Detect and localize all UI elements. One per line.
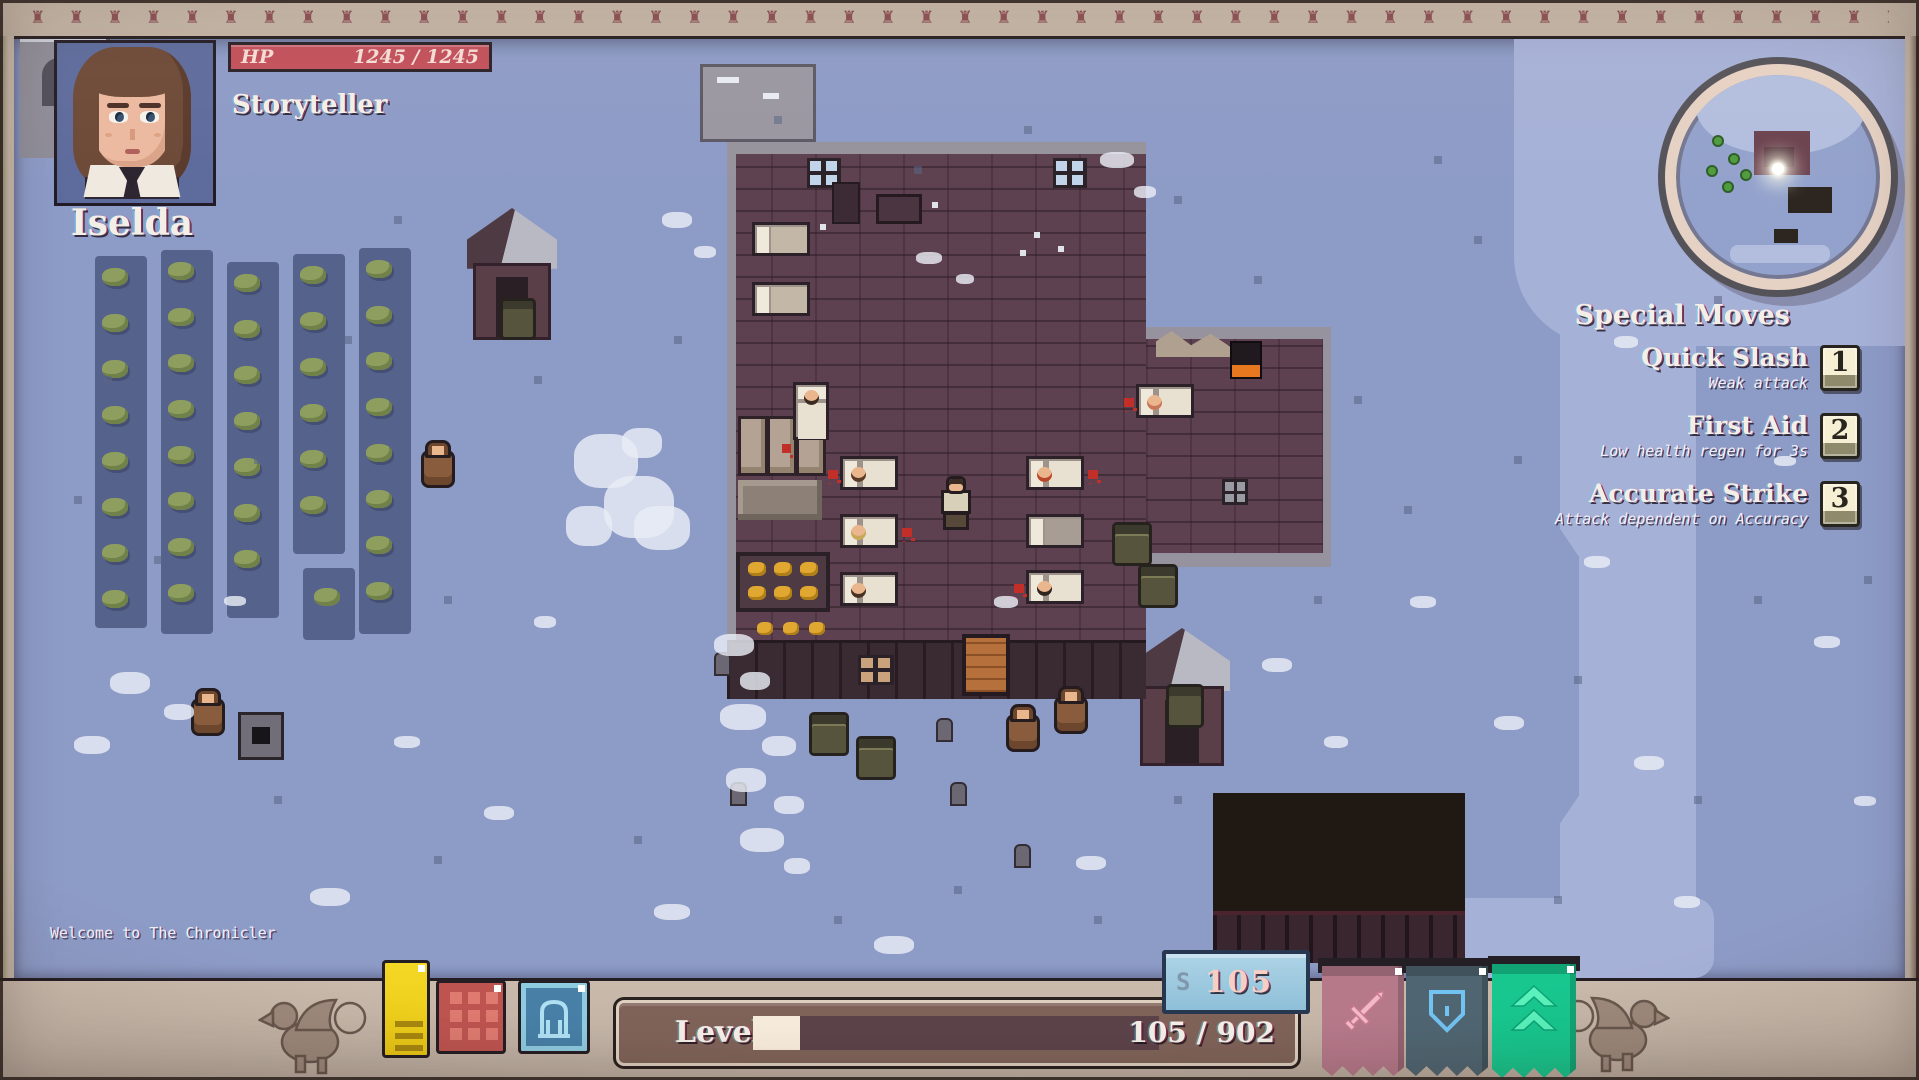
- bread-item: [800, 562, 818, 576]
- snow-patch: [726, 768, 766, 792]
- snow-patch: [654, 904, 690, 920]
- minimap-tree: [1728, 153, 1740, 165]
- patient-head[interactable]: [1037, 467, 1052, 482]
- freckle: [105, 133, 112, 137]
- minimap-tree: [1706, 165, 1718, 177]
- snow-fleck: [820, 224, 826, 230]
- snow-patch: [1854, 796, 1876, 806]
- window-pane: [826, 161, 837, 171]
- snow-patch: [1674, 896, 1700, 908]
- bed-sprite: [840, 456, 898, 490]
- snow-patch: [956, 274, 974, 284]
- currency-icon: S: [1176, 968, 1190, 996]
- bed-blanket: [771, 287, 807, 313]
- face: [432, 446, 444, 455]
- frame-top-border: ♜ ♜ ♜ ♜ ♜ ♜ ♜ ♜ ♜ ♜ ♜ ♜ ♜ ♜ ♜ ♜ ♜ ♜ ♜ ♜ …: [0, 0, 1919, 39]
- crop-plant: [102, 314, 128, 332]
- ground-speck: [394, 216, 402, 224]
- robe: [943, 512, 969, 530]
- bread-item: [748, 586, 766, 600]
- hair-lock-left: [83, 79, 99, 163]
- villager-sprite[interactable]: [191, 688, 225, 736]
- well: [238, 712, 284, 760]
- bed-sheet: [1049, 575, 1081, 601]
- grid-cell: [450, 1010, 462, 1022]
- minimap-structure: [1774, 229, 1798, 243]
- ground-speck: [1404, 506, 1412, 514]
- patient-head[interactable]: [804, 390, 819, 405]
- sacks: [738, 480, 822, 520]
- player-name: Iselda: [20, 202, 244, 244]
- bed-sprite: [840, 514, 898, 548]
- blood-decal: [1014, 584, 1024, 593]
- minimap-light-area: [1730, 245, 1830, 263]
- caretaker-sprite[interactable]: [939, 476, 973, 532]
- ground-speck: [1174, 196, 1182, 204]
- grave-post: [1014, 844, 1031, 868]
- ground-speck: [634, 836, 642, 844]
- game-screen: ♜ ♜ ♜ ♜ ♜ ♜ ♜ ♜ ♜ ♜ ♜ ♜ ♜ ♜ ♜ ♜ ♜ ♜ ♜ ♜ …: [0, 0, 1919, 1080]
- hotkey-1-button[interactable]: 1: [1820, 345, 1860, 391]
- window-pane: [1056, 175, 1067, 185]
- notes-icon[interactable]: [382, 960, 430, 1058]
- window-cross: [1225, 491, 1245, 494]
- ground-speck: [954, 886, 962, 894]
- snow-patch: [714, 634, 754, 656]
- hp-value: 1245 / 1245: [353, 46, 479, 68]
- crop-strip: [359, 248, 411, 634]
- stone-wall-top: [727, 142, 1146, 154]
- window-pane: [1072, 175, 1083, 185]
- iris-left: [115, 112, 124, 122]
- special-move-row: First Aid Low health regen for 3s 2: [1430, 413, 1860, 460]
- snow-patch: [1262, 658, 1292, 672]
- hp-label: HP: [241, 46, 273, 68]
- ground-speck: [1574, 676, 1582, 684]
- crop-plant: [366, 352, 392, 370]
- bread-item: [748, 562, 766, 576]
- icon-highlight: [1395, 968, 1402, 975]
- snow-patch: [310, 888, 350, 906]
- grid-cell: [450, 1028, 462, 1040]
- crop-plant: [168, 400, 194, 418]
- frame-right-border: [1905, 36, 1919, 978]
- ground-speck: [534, 376, 542, 384]
- wall-window: [858, 655, 894, 685]
- special-move-row: Quick Slash Weak attack 1: [1430, 345, 1860, 392]
- snow-patch: [1410, 596, 1436, 608]
- shield-icon: [1423, 986, 1471, 1038]
- player-class: Storyteller: [232, 90, 387, 120]
- ground-speck: [1864, 576, 1872, 584]
- ground-speck: [1434, 156, 1442, 164]
- roof: [1213, 793, 1465, 911]
- bread-item: [757, 622, 773, 635]
- ground-speck: [1314, 596, 1322, 604]
- minimap[interactable]: [1665, 64, 1891, 290]
- defense-banner[interactable]: [1406, 958, 1488, 1076]
- snow-patch: [1076, 856, 1106, 870]
- player-portrait[interactable]: [54, 40, 216, 206]
- stone-wall-left: [727, 142, 736, 642]
- currency-display: S 105: [1162, 950, 1310, 1014]
- window-pane: [861, 672, 873, 682]
- hotkey-3-button[interactable]: 3: [1820, 481, 1860, 527]
- grid-cell: [486, 1010, 498, 1022]
- food-table: [736, 552, 830, 612]
- icon-highlight: [418, 965, 425, 972]
- crop-plant: [366, 398, 392, 416]
- bed-blanket: [771, 227, 807, 253]
- snow-patch: [1814, 636, 1840, 648]
- minimap-tree: [1712, 135, 1724, 147]
- bed-sprite: [1136, 384, 1194, 418]
- ground-speck: [1024, 126, 1032, 134]
- ground-speck: [1174, 796, 1182, 804]
- ground-speck: [344, 336, 352, 344]
- face: [202, 694, 214, 703]
- snow-fleck: [1058, 246, 1064, 252]
- cabinet: [832, 182, 860, 224]
- special-moves-title: Special Moves: [1430, 300, 1860, 331]
- bed-sheet: [1049, 461, 1081, 487]
- window-pane: [1072, 161, 1083, 171]
- crop-plant: [102, 406, 128, 424]
- crop-plant: [168, 262, 194, 280]
- crop-plant: [234, 504, 260, 522]
- bed-blanket: [1045, 519, 1081, 545]
- bed-pillow: [757, 227, 769, 253]
- patient-head[interactable]: [1037, 581, 1052, 596]
- minimap-structure: [1788, 187, 1832, 213]
- snow-patch: [534, 616, 556, 628]
- snow-fleck: [1034, 232, 1040, 238]
- bed-sprite: [840, 572, 898, 606]
- bread-item: [783, 622, 799, 635]
- ground-speck: [1694, 796, 1702, 804]
- barrel-sprite: [809, 712, 849, 756]
- barrel-sprite: [500, 298, 536, 340]
- window-icon: [1053, 158, 1087, 188]
- crop-plant: [366, 536, 392, 554]
- grid-cell: [468, 1010, 480, 1022]
- snow-fleck: [1020, 250, 1026, 256]
- crop-plant: [234, 412, 260, 430]
- move-desc: Weak attack: [1641, 374, 1808, 392]
- grid-cell: [468, 992, 480, 1004]
- crop-plant: [234, 366, 260, 384]
- snow-patch: [394, 736, 420, 748]
- table: [876, 194, 922, 224]
- snow-patch: [784, 858, 810, 874]
- ground-speck: [1254, 276, 1262, 284]
- ground-speck: [1474, 236, 1482, 244]
- snow-patch: [994, 596, 1018, 608]
- snow-patch: [110, 672, 150, 694]
- bed-sheet: [1159, 389, 1191, 415]
- crop-plant: [366, 582, 392, 600]
- minimap-tree: [1722, 181, 1734, 193]
- villager-sprite[interactable]: [1054, 686, 1088, 734]
- door: [962, 634, 1010, 696]
- crop-plant: [168, 538, 194, 556]
- snow-fleck: [932, 202, 938, 208]
- crop-plant: [300, 312, 326, 330]
- ground-speck: [1754, 596, 1762, 604]
- crop-plant: [300, 450, 326, 468]
- hut-roof: [467, 208, 557, 269]
- xp-fill: [753, 1016, 800, 1050]
- nose: [130, 129, 135, 140]
- blood-decal: [1124, 398, 1134, 407]
- move-name: First Aid: [1600, 413, 1808, 439]
- snow-fleck: [717, 77, 739, 83]
- grid-cell: [468, 1028, 480, 1040]
- grave-post: [950, 782, 967, 806]
- move-desc: Attack dependent on Accuracy: [1555, 510, 1808, 528]
- icon-highlight: [1567, 966, 1574, 973]
- grid-window: [1222, 479, 1248, 505]
- ground-speck: [834, 916, 842, 924]
- iris-right: [146, 112, 155, 122]
- xp-track: [753, 1016, 1159, 1050]
- ground-speck: [274, 796, 282, 804]
- crop-plant: [102, 268, 128, 286]
- head: [946, 476, 966, 494]
- snow-patch: [1494, 716, 1524, 730]
- move-desc: Low health regen for 3s: [1600, 442, 1808, 460]
- tapestry-pattern: ♜ ♜ ♜ ♜ ♜ ♜ ♜ ♜ ♜ ♜ ♜ ♜ ♜ ♜ ♜ ♜ ♜ ♜ ♜ ♜ …: [30, 6, 1889, 32]
- grid-cell: [486, 1028, 498, 1040]
- well-hole: [252, 727, 270, 744]
- hair-lock-right: [165, 79, 181, 165]
- snow-patch: [874, 936, 914, 954]
- bed-sheet: [863, 461, 895, 487]
- snow-patch: [634, 506, 690, 550]
- ground-speck: [914, 166, 922, 174]
- bread-item: [800, 586, 818, 600]
- crop-plant: [168, 354, 194, 372]
- ground-speck: [104, 376, 112, 384]
- sword-icon: [1337, 986, 1389, 1038]
- blood-decal: [828, 470, 838, 479]
- agility-banner[interactable]: [1492, 956, 1576, 1078]
- icon-highlight: [1479, 968, 1486, 975]
- hp-bar: HP 1245 / 1245: [228, 42, 492, 72]
- hotkey-2-button[interactable]: 2: [1820, 413, 1860, 459]
- crop-strip: [161, 250, 213, 634]
- window-pane: [878, 672, 890, 682]
- bread-item: [774, 562, 792, 576]
- ground-speck: [1354, 396, 1362, 404]
- bed-sprite: [1026, 514, 1084, 548]
- brow-right: [139, 103, 161, 108]
- crop-plant: [168, 492, 194, 510]
- bed-pillow: [757, 287, 769, 313]
- ground-speck: [254, 456, 262, 464]
- snow-patch: [662, 212, 692, 228]
- crop-plant: [168, 584, 194, 602]
- move-name: Quick Slash: [1641, 345, 1808, 371]
- window-pane: [810, 175, 821, 185]
- message-log: Welcome to The Chronicler: [50, 924, 276, 942]
- snow-patch: [916, 252, 942, 264]
- attack-banner[interactable]: [1322, 958, 1404, 1076]
- bed-pillow: [1031, 519, 1043, 545]
- crop-plant: [102, 452, 128, 470]
- crop-plant: [366, 490, 392, 508]
- move-name: Accurate Strike: [1555, 481, 1808, 507]
- villager-sprite[interactable]: [421, 440, 455, 488]
- minimap-player-dot: [1772, 163, 1784, 175]
- snow-patch: [164, 704, 194, 720]
- bread-item: [809, 622, 825, 635]
- ground-speck: [154, 556, 162, 564]
- snow-patch: [1584, 556, 1610, 568]
- face: [1017, 710, 1029, 719]
- freckle: [154, 133, 161, 137]
- minimap-tree: [1740, 169, 1752, 181]
- bread-item: [774, 586, 792, 600]
- mouth: [125, 149, 140, 154]
- crop-strip: [227, 262, 279, 618]
- crop-plant: [366, 260, 392, 278]
- bed-sheet: [863, 519, 895, 545]
- ground-speck: [774, 116, 782, 124]
- blood-decal: [782, 444, 791, 453]
- patient-head[interactable]: [1147, 395, 1162, 410]
- chevrons-icon: [1508, 984, 1560, 1040]
- crop-plant: [234, 320, 260, 338]
- currency-amount: 105: [1204, 965, 1273, 1000]
- ground-speck: [1094, 916, 1102, 924]
- bed-sheet: [863, 577, 895, 603]
- bed-sprite: [752, 222, 810, 256]
- ground-speck: [674, 336, 682, 344]
- hut-roof: [1134, 628, 1230, 691]
- snow-patch: [1134, 186, 1156, 198]
- furnace: [1230, 341, 1262, 379]
- barrel-sprite: [1112, 522, 1152, 566]
- snow-patch: [774, 796, 804, 814]
- dark-storehouse: [1213, 793, 1465, 963]
- crop-plant: [168, 446, 194, 464]
- snow-patch: [1324, 736, 1348, 748]
- crop-strip: [95, 256, 147, 628]
- crop-plant: [366, 306, 392, 324]
- bed-sprite: [1026, 570, 1084, 604]
- gryphon-left-ornament: [258, 984, 376, 1078]
- xp-text: 105 / 902: [1128, 1016, 1275, 1049]
- crop-plant: [300, 496, 326, 514]
- crop-plant: [314, 588, 340, 606]
- crop-plant: [168, 308, 194, 326]
- crop-plant: [300, 404, 326, 422]
- crop-plant: [102, 498, 128, 516]
- ground-speck: [1554, 896, 1562, 904]
- patient-head[interactable]: [851, 525, 866, 540]
- snow-fleck: [763, 93, 779, 99]
- special-move-row: Accurate Strike Attack dependent on Accu…: [1430, 481, 1860, 528]
- barrel-sprite: [1138, 564, 1178, 608]
- crop-plant: [102, 544, 128, 562]
- snow-patch: [566, 506, 612, 546]
- snow-patch: [74, 736, 110, 754]
- crop-strip: [293, 254, 345, 554]
- window-pane: [1056, 161, 1067, 171]
- stone-block: [700, 64, 816, 142]
- special-moves-panel: Special Moves Quick Slash Weak attack 1 …: [1430, 300, 1860, 549]
- grave-post: [936, 718, 953, 742]
- bed-sprite: [793, 382, 829, 440]
- window-pane: [878, 658, 890, 668]
- ground-speck: [74, 496, 82, 504]
- crop-plant: [234, 550, 260, 568]
- grid-cell: [450, 992, 462, 1004]
- barrel-sprite: [1166, 684, 1204, 728]
- snow-patch: [1634, 756, 1664, 770]
- snow-patch: [694, 246, 716, 258]
- patient-head[interactable]: [851, 467, 866, 482]
- character-icon[interactable]: [518, 980, 590, 1054]
- crop-plant: [300, 266, 326, 284]
- window-pane: [861, 658, 873, 668]
- snow-patch: [740, 828, 784, 852]
- blood-decal: [902, 528, 912, 537]
- crop-plant: [102, 590, 128, 608]
- snow-patch: [622, 428, 662, 458]
- inventory-grid-icon[interactable]: [436, 980, 506, 1054]
- icon-highlight: [494, 985, 501, 992]
- icon-highlight: [578, 985, 585, 992]
- crop-plant: [300, 358, 326, 376]
- blood-decal: [1088, 470, 1098, 479]
- crop-plant: [366, 444, 392, 462]
- patient-head[interactable]: [851, 583, 866, 598]
- brow-left: [107, 103, 129, 108]
- ground-speck: [444, 596, 452, 604]
- crop-plant: [234, 274, 260, 292]
- window-pane: [810, 161, 821, 171]
- frame-left-border: [0, 36, 14, 978]
- grid-cell: [486, 992, 498, 1004]
- barrel-sprite: [856, 736, 896, 780]
- snow-patch: [1100, 152, 1134, 168]
- snow-patch: [720, 704, 766, 730]
- ground-speck: [434, 856, 442, 864]
- bed-sprite: [752, 282, 810, 316]
- bed-sprite: [1026, 456, 1084, 490]
- bed-sheet: [798, 403, 826, 439]
- stone-wall-right: [1323, 327, 1331, 567]
- snow-patch: [484, 806, 514, 820]
- main-building-wing: [1146, 327, 1331, 567]
- villager-sprite[interactable]: [1006, 704, 1040, 752]
- snow-patch: [740, 672, 770, 690]
- snow-patch: [762, 736, 796, 756]
- face: [1065, 692, 1077, 701]
- locker-panel: [741, 419, 765, 473]
- snow-patch: [224, 596, 246, 606]
